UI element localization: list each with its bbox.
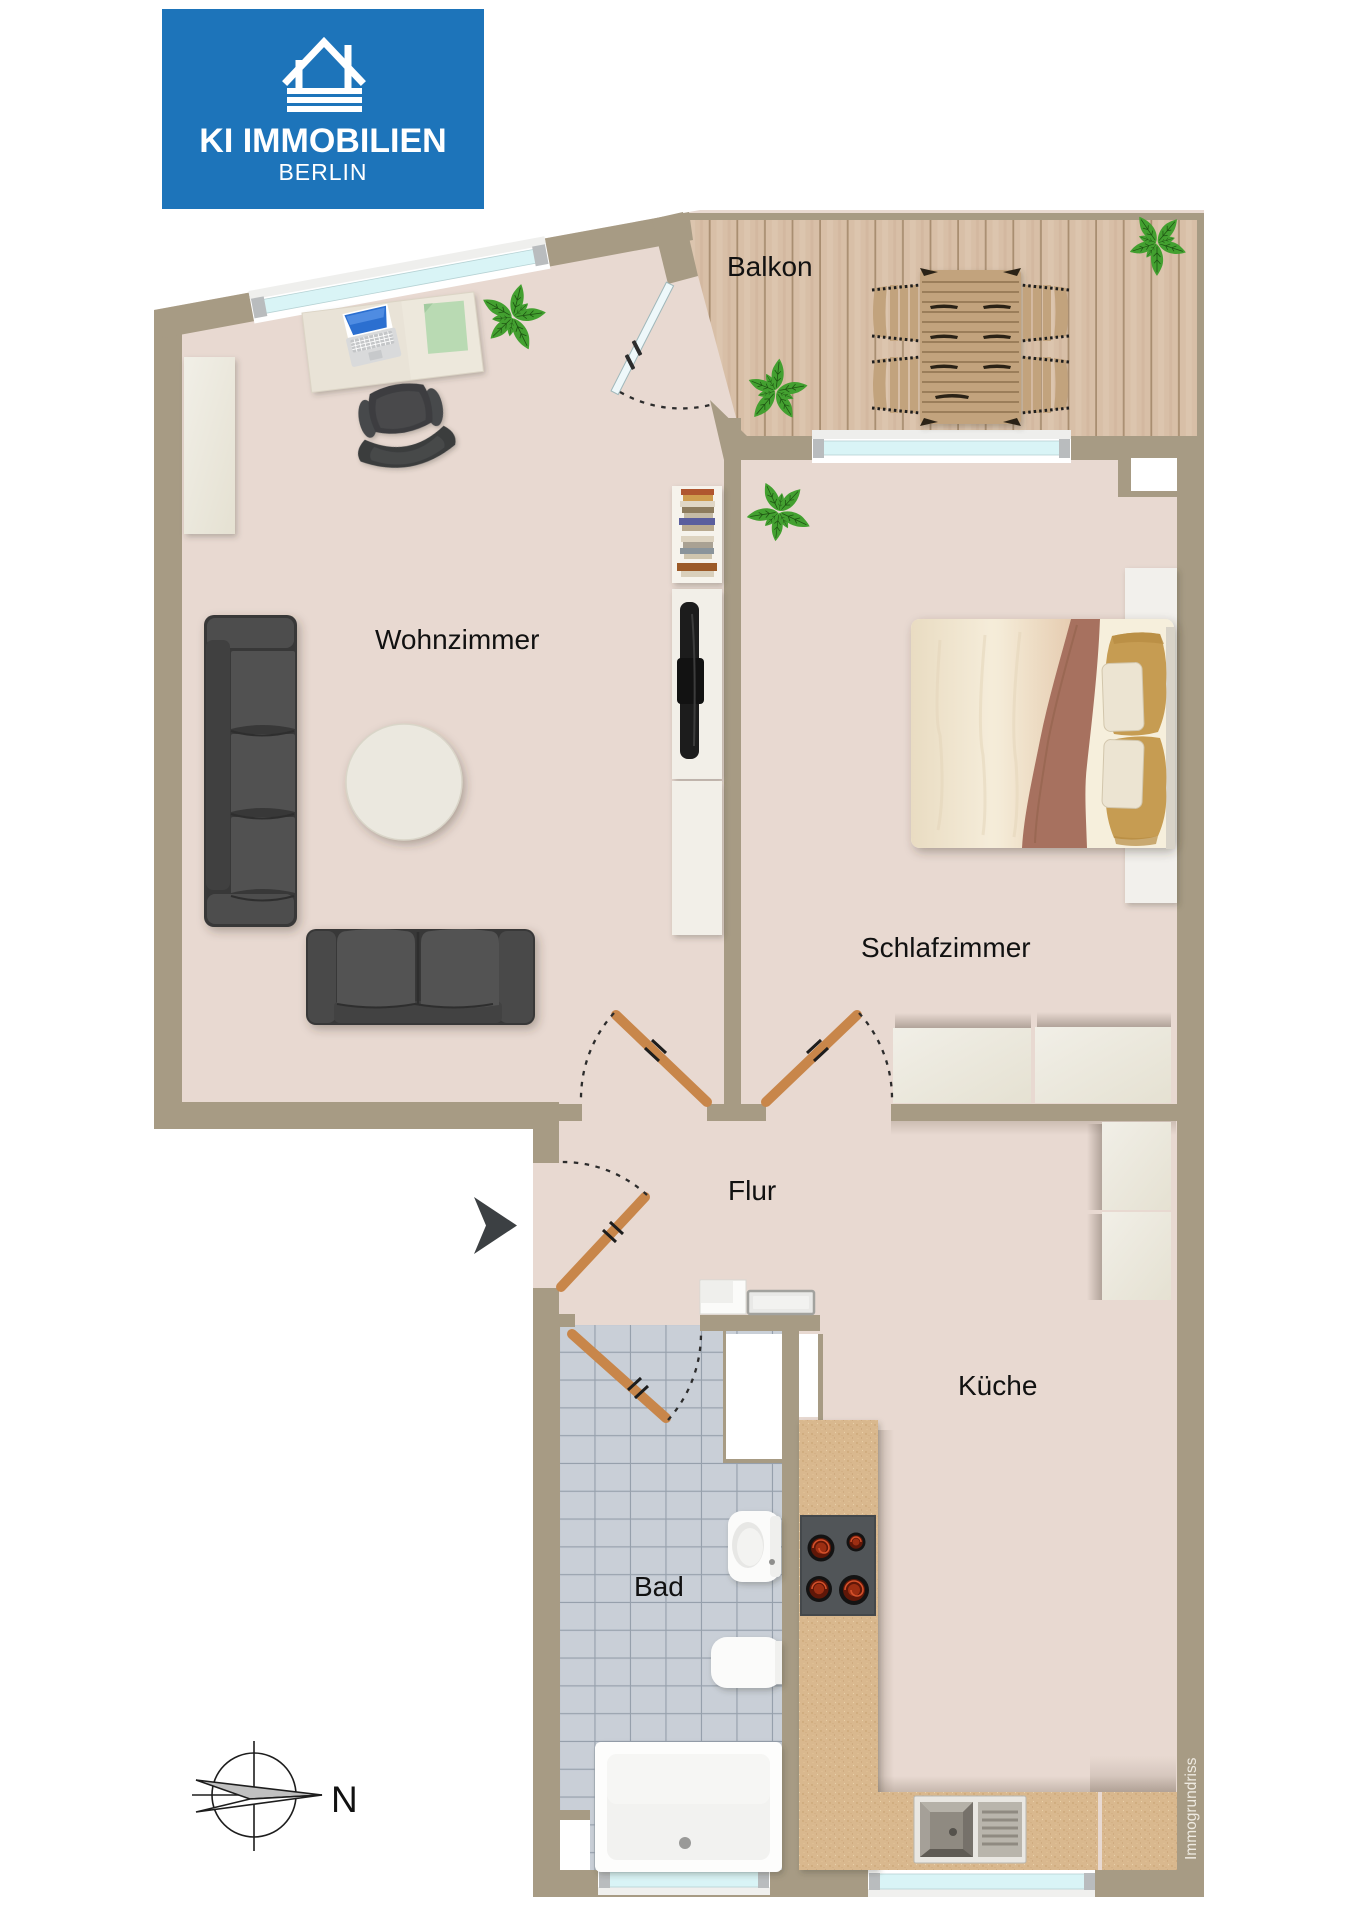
svg-text:Bad: Bad [634,1571,684,1602]
svg-text:Immogrundriss: Immogrundriss [1183,1757,1200,1860]
svg-text:Flur: Flur [728,1175,776,1206]
svg-text:Schlafzimmer: Schlafzimmer [861,932,1031,963]
svg-text:BERLIN: BERLIN [278,159,367,185]
svg-text:Balkon: Balkon [727,251,813,282]
svg-text:Küche: Küche [958,1370,1037,1401]
svg-text:N: N [331,1779,358,1820]
svg-text:KI IMMOBILIEN: KI IMMOBILIEN [199,122,446,160]
svg-text:Wohnzimmer: Wohnzimmer [375,624,539,655]
